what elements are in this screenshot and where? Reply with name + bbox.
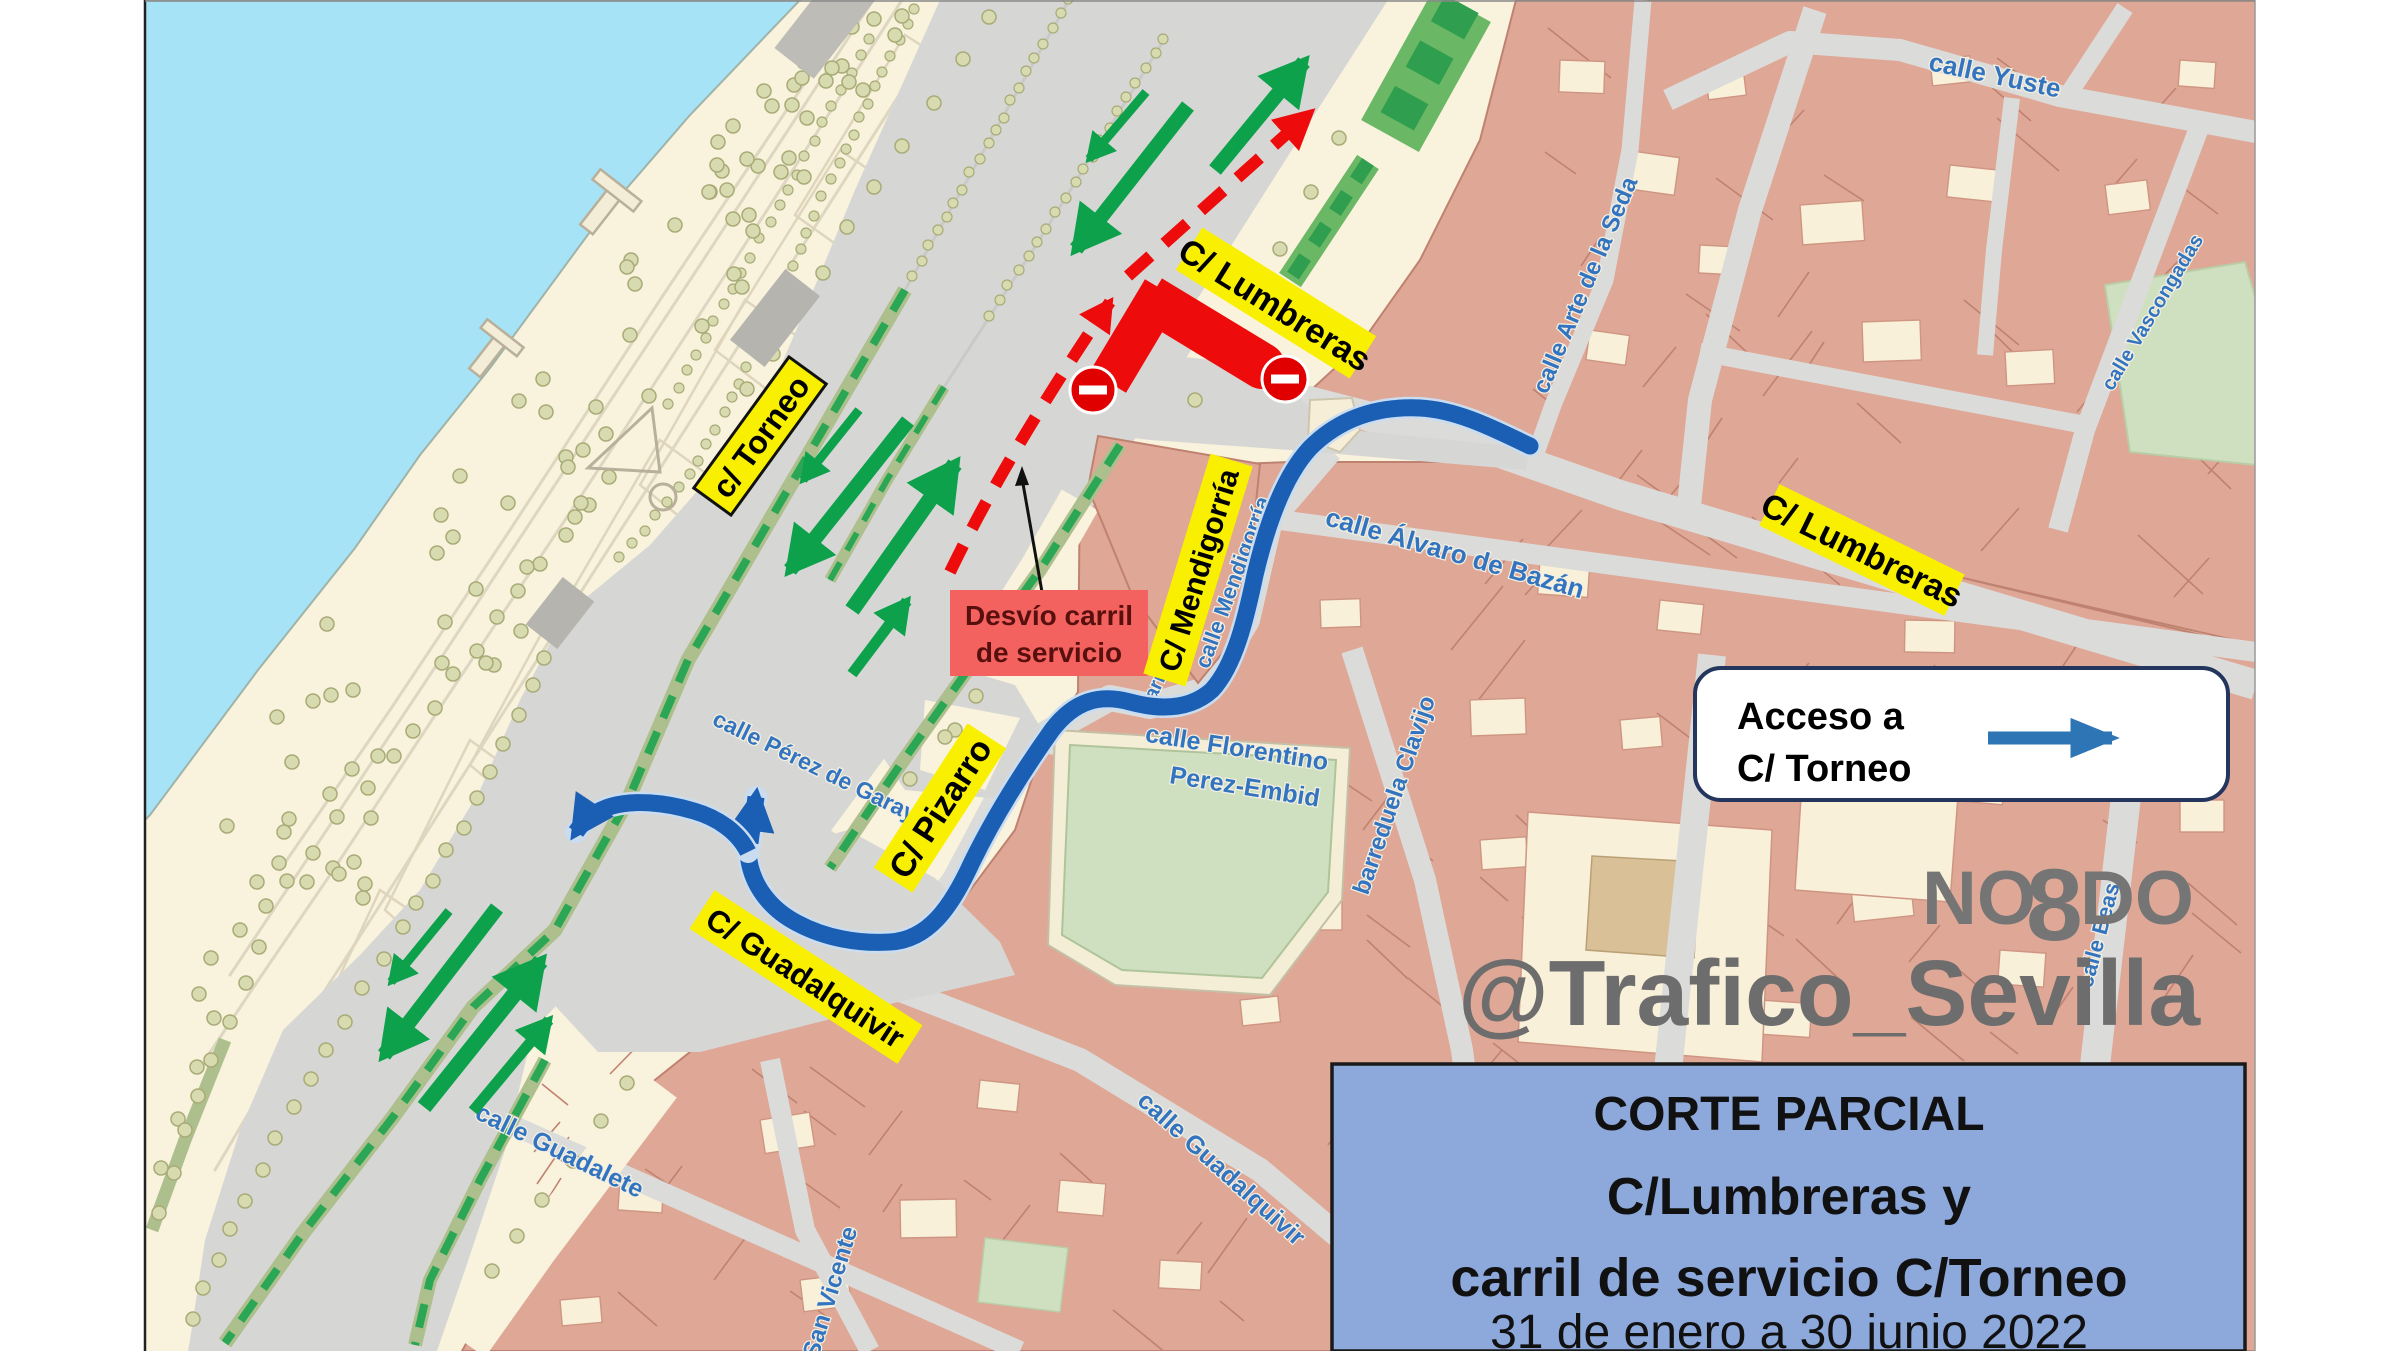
svg-text:Acceso a: Acceso a bbox=[1737, 696, 1905, 738]
svg-text:31 de enero a 30 junio 2022: 31 de enero a 30 junio 2022 bbox=[1490, 1306, 2088, 1351]
svg-text:@Trafico_Sevilla: @Trafico_Sevilla bbox=[1458, 941, 2201, 1045]
svg-text:de servicio: de servicio bbox=[976, 637, 1122, 668]
svg-text:DO: DO bbox=[2080, 856, 2194, 941]
svg-text:CORTE PARCIAL: CORTE PARCIAL bbox=[1593, 1088, 1984, 1141]
svg-text:C/ Torneo: C/ Torneo bbox=[1737, 748, 1912, 790]
svg-text:Desvío carril: Desvío carril bbox=[965, 600, 1133, 631]
svg-text:C/Lumbreras y: C/Lumbreras y bbox=[1607, 1168, 1971, 1226]
svg-text:NO: NO bbox=[1922, 856, 2036, 941]
svg-text:carril de servicio C/Torneo: carril de servicio C/Torneo bbox=[1450, 1248, 2127, 1308]
